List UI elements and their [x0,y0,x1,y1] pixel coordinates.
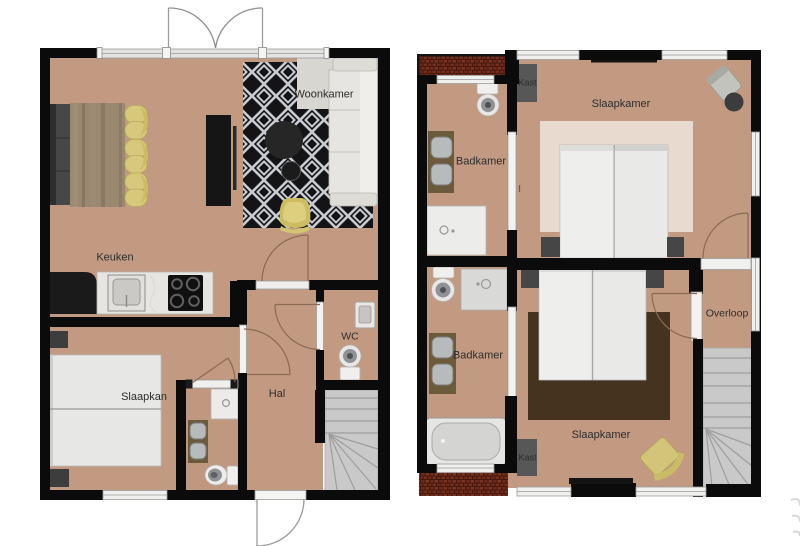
svg-text:Badkamer: Badkamer [453,350,503,362]
svg-text:Keuken: Keuken [96,252,133,264]
svg-text:Kast: Kast [519,453,538,463]
svg-text:Hal: Hal [269,388,286,400]
svg-text:Slaapkamer: Slaapkamer [592,98,651,110]
svg-text:Kast: Kast [519,78,538,88]
svg-text:Badkamer: Badkamer [456,156,506,168]
svg-text:Overloop: Overloop [706,308,749,320]
svg-text:WC: WC [341,331,359,343]
svg-text:Slaapkan: Slaapkan [121,391,167,403]
svg-text:Woonkamer: Woonkamer [294,89,353,101]
svg-text:Slaapkamer: Slaapkamer [572,429,631,441]
